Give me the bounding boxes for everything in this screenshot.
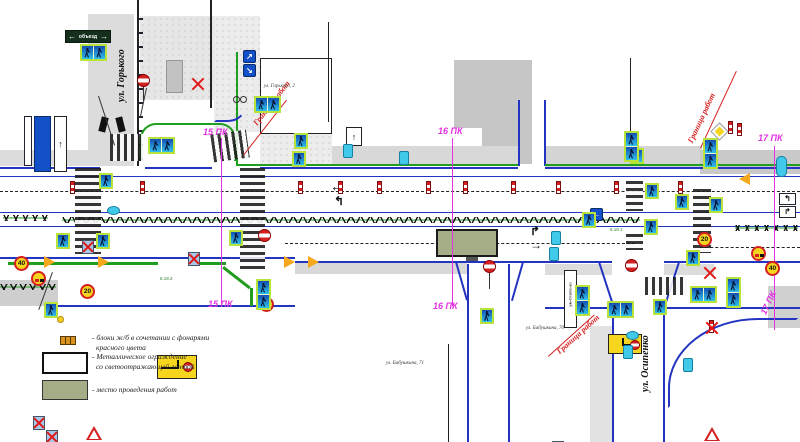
- removed-sign-xmark-c: [706, 321, 718, 335]
- pedestrian-icon: [233, 233, 240, 243]
- road-edge-south-1: [295, 261, 612, 263]
- lane-line-c: [0, 226, 800, 227]
- picket-label-17-top: 17 ПК: [758, 133, 783, 143]
- speed-40-value: 40: [18, 260, 25, 267]
- picket-label-15-bottom: 15 ПК: [208, 299, 233, 309]
- no-entry-sign-a: [137, 74, 150, 87]
- lane-control-board-2: ↱: [779, 206, 796, 218]
- pedestrian-crossing-sign: [44, 302, 58, 318]
- delineator-post: [678, 181, 683, 194]
- pedestrian-icon: [152, 141, 159, 151]
- route-green-top-1: [236, 164, 518, 166]
- delineator-post: [728, 121, 733, 134]
- work-zone-area: [436, 229, 498, 257]
- lane-arrow-right: →: [530, 238, 542, 252]
- removed-sign: [46, 430, 58, 442]
- delineator-post: [140, 181, 145, 194]
- delineator-post: [511, 181, 516, 194]
- pedestrian-icon: [298, 136, 305, 146]
- pedestrian-icon: [586, 215, 593, 225]
- pedestrian-icon: [707, 142, 714, 152]
- keep-direction-sign-se: ↘: [243, 64, 256, 77]
- delineator-post: [614, 181, 619, 194]
- speed-limit-20-sign-c: 20: [697, 232, 712, 247]
- route-green-top-2: [545, 164, 800, 166]
- pedestrian-icon: [730, 281, 737, 291]
- pedestrian-icon: [484, 311, 491, 321]
- speed-20-value-c: 20: [701, 236, 708, 243]
- median-fence: [62, 217, 640, 223]
- curb-south-street-w: [467, 264, 469, 442]
- road-edge-top-2: [145, 167, 212, 169]
- pedestrian-icon: [48, 305, 55, 315]
- work-zone-foot: [466, 257, 478, 261]
- speed-limit-20-sign-a: 20: [80, 284, 95, 299]
- pedestrian-crossing-sign: [229, 230, 243, 246]
- street-direction-text: ул. Осипенко: [568, 282, 573, 306]
- no-entry-stem-c: [489, 273, 490, 289]
- pedestrian-crossing-sign: [644, 219, 658, 235]
- legend-text-1-line1: - блоки ж/б в сочетании с фонарями: [92, 333, 209, 342]
- pedestrian-sign-pair-vertical: [256, 279, 271, 310]
- guide-sign-up-arrow-icon: ↑: [58, 139, 63, 149]
- delineator-post: [338, 181, 343, 194]
- curb-gorkogo-east: [210, 0, 212, 108]
- road-edge-top-3: [260, 167, 518, 169]
- pedestrian-crossing-sign: [94, 46, 105, 59]
- service-sign: [343, 144, 353, 158]
- speed-20-value-a: 20: [84, 288, 91, 295]
- building-small: [166, 60, 183, 93]
- route-green-c: [250, 288, 253, 306]
- pedestrian-icon: [628, 149, 635, 159]
- curb-north-street-w: [518, 100, 520, 166]
- pedestrian-icon: [628, 135, 635, 145]
- no-overtaking-sign-left: [31, 271, 46, 286]
- pedestrian-icon: [260, 297, 267, 307]
- pedestrian-icon: [694, 290, 701, 300]
- picket-line-17: [774, 146, 775, 330]
- legend-text-2-line2: со светоотражающей лентой: [96, 362, 195, 371]
- service-sign: [551, 231, 561, 245]
- bike-wheel-icon-a: [233, 96, 240, 103]
- delineator-post: [377, 181, 382, 194]
- sign-code-6-19-1: 6.19.1: [610, 227, 623, 232]
- pedestrian-crossing-sign: [82, 46, 93, 59]
- picket-line-16: [452, 138, 453, 306]
- pedestrian-crossing-sign: [705, 154, 716, 167]
- guide-sign-white-arrow: ↑: [54, 116, 67, 172]
- work-boundary-label-3: Граница работ: [686, 92, 717, 145]
- service-sign: [683, 358, 693, 372]
- bike-wheel-icon-b: [240, 96, 247, 103]
- crosswalk-right-w2: [626, 234, 643, 250]
- removed-sign-xmark-a: [192, 77, 204, 91]
- pedestrian-sign-pair: [254, 96, 281, 113]
- no-entry-sign-c: [483, 260, 496, 273]
- curb-osipenko-w: [612, 308, 614, 442]
- lane-board-arrow-2-icon: ↱: [784, 207, 791, 216]
- curb-south-street-e: [508, 264, 510, 442]
- pedestrian-crossing-sign: [621, 303, 632, 316]
- speed-40-value-b: 40: [769, 265, 776, 272]
- legend-icon-concrete-blocks: [60, 336, 76, 345]
- turn-direction-arrow-icon: [44, 256, 55, 268]
- pedestrian-crossing-sign: [626, 133, 637, 146]
- pedestrian-icon: [611, 305, 618, 315]
- building-label-babushkina-70: ул. Бабушкина, 70: [526, 326, 564, 331]
- service-ellipse-a: [107, 206, 120, 215]
- pedestrian-icon: [706, 290, 713, 300]
- pedestrian-icon: [100, 236, 107, 246]
- pedestrian-crossing-sign: [692, 288, 703, 301]
- pedestrian-crossing-sign: [686, 250, 700, 266]
- red-lamp-icon: [57, 316, 64, 323]
- pedestrian-crossing-sign: [150, 139, 161, 152]
- pedestrian-icon: [649, 186, 656, 196]
- no-overtaking-sign-right: [751, 246, 766, 261]
- pedestrian-sign-pair-vertical: [703, 138, 718, 169]
- no-entry-sign-d: [625, 259, 638, 272]
- removed-sign: [33, 416, 45, 430]
- fence-right: [735, 225, 798, 231]
- turn-direction-arrow-icon: [284, 256, 295, 268]
- pedestrian-crossing-sign: [728, 279, 739, 292]
- crosswalk-north-a: [110, 134, 144, 161]
- road-edge-south-2: [664, 261, 800, 263]
- pedestrian-icon: [679, 197, 686, 207]
- delineator-post: [298, 181, 303, 194]
- detour-board-arrow-left-icon: ←: [68, 33, 76, 41]
- picket-label-16-bottom: 16 ПК: [433, 301, 458, 311]
- detour-board-text: объезд: [79, 34, 97, 40]
- pedestrian-crossing-sign: [480, 308, 494, 324]
- pedestrian-crossing-sign: [162, 139, 173, 152]
- lane-dashed-2: [700, 247, 800, 248]
- sidewalk-north-1: [332, 146, 518, 166]
- service-sign: [623, 345, 633, 359]
- pedestrian-crossing-sign: [577, 287, 588, 300]
- pedestrian-crossing-sign: [728, 293, 739, 306]
- street-label-gorkogo: ул. Горького: [116, 49, 127, 102]
- picket-label-15-top: 15 ПК: [203, 127, 228, 137]
- pedestrian-crossing-sign: [577, 301, 588, 314]
- removed-sign: [82, 240, 94, 254]
- crosswalk-osipenko: [645, 277, 687, 295]
- service-sign: [399, 151, 409, 165]
- pedestrian-sign-pair: [607, 301, 634, 318]
- legend-text-2-line1: - Металлическое ограждение: [92, 352, 187, 361]
- building-wall-line: [448, 344, 449, 442]
- speed-limit-40-sign-right: 40: [765, 261, 780, 276]
- pedestrian-crossing-sign: [705, 140, 716, 153]
- legend-icon-work-zone: [42, 380, 88, 400]
- turn-direction-arrow-icon: [98, 256, 109, 268]
- pedestrian-icon: [270, 100, 277, 110]
- pedestrian-icon: [579, 289, 586, 299]
- pedestrian-icon: [623, 305, 630, 315]
- pedestrian-sign-pair-vertical: [575, 285, 590, 316]
- fence-left-a: [3, 215, 48, 221]
- lane-arrow-left-turn: ↰: [334, 194, 344, 208]
- removed-sign: [188, 252, 200, 266]
- turn-direction-arrow-icon: [739, 173, 750, 185]
- pedestrian-sign-pair: [148, 137, 175, 154]
- building-label-babushkina-71: ул. Бабушкина, 71: [386, 361, 424, 366]
- traffic-scheme-canvas: 15 ПК 15 ПК 16 ПК 16 ПК 17 ПК 17 ПК Гран…: [0, 0, 800, 442]
- delineator-post: [426, 181, 431, 194]
- guide-sign-blue: [34, 116, 51, 172]
- guide-sign-white-narrow: [24, 116, 32, 166]
- pedestrian-icon: [657, 302, 664, 312]
- pedestrian-crossing-sign: [609, 303, 620, 316]
- road-edge-top-4: [545, 167, 800, 169]
- pedestrian-icon: [648, 222, 655, 232]
- warning-triangle-sign: [86, 426, 102, 440]
- pedestrian-crossing-sign: [653, 299, 667, 315]
- pedestrian-icon: [296, 154, 303, 164]
- detour-board-arrow-right-icon: →: [100, 33, 108, 41]
- crosswalk-right-w1: [626, 181, 643, 211]
- pedestrian-icon: [164, 141, 171, 151]
- pedestrian-crossing-sign: [626, 147, 637, 160]
- building-label-gorkogo-2: ул. Горького, 2: [264, 84, 295, 89]
- ne-arrow-icon: ↗: [246, 52, 253, 61]
- pedestrian-sign-pair-vertical: [726, 277, 741, 308]
- se-arrow-icon: ↘: [246, 66, 253, 75]
- curb-north-street-e: [544, 100, 546, 166]
- pedestrian-icon: [730, 295, 737, 305]
- keep-direction-sign-ne: ↗: [243, 50, 256, 63]
- pedestrian-sign-pair: [690, 286, 717, 303]
- service-ellipse-b: [626, 331, 639, 340]
- crosswalk-main-east: [240, 168, 265, 271]
- pedestrian-crossing-sign: [258, 281, 269, 294]
- pedestrian-icon: [260, 283, 267, 293]
- pedestrian-icon: [103, 176, 110, 186]
- warning-triangle-removed: [704, 427, 720, 441]
- pedestrian-crossing-sign: [675, 194, 689, 210]
- pedestrian-icon: [707, 156, 714, 166]
- service-sign-capsule: [776, 156, 787, 177]
- boundary-line-a: [328, 22, 329, 122]
- delineator-post: [70, 181, 75, 194]
- pedestrian-crossing-sign: [99, 173, 113, 189]
- pedestrian-crossing-sign: [292, 151, 306, 167]
- removed-sign-xmark-b: [704, 266, 716, 280]
- sidewalk-south-center: [295, 262, 467, 274]
- delineator-post: [556, 181, 561, 194]
- pedestrian-icon: [96, 48, 103, 58]
- pedestrian-icon: [60, 236, 67, 246]
- detour-board-sign: ← объезд →: [65, 30, 111, 43]
- service-sign: [549, 247, 559, 261]
- pedestrian-sign-pair-vertical: [624, 131, 639, 162]
- curb-osipenko-e: [663, 308, 665, 442]
- delineator-post: [737, 123, 742, 136]
- lane-control-board-1: ↰: [779, 193, 796, 205]
- pedestrian-crossing-sign: [645, 183, 659, 199]
- lane-line-b: [0, 212, 800, 213]
- legend-text-3-line1: - место проведения работ: [92, 385, 177, 394]
- sign-code-6-19-2: 6.19.2: [160, 276, 173, 281]
- pedestrian-crossing-sign: [268, 98, 279, 111]
- pedestrian-crossing-sign: [709, 197, 723, 213]
- pedestrian-icon: [84, 48, 91, 58]
- pedestrian-icon: [258, 100, 265, 110]
- picket-label-16-top: 16 ПК: [438, 126, 463, 136]
- route-up-arrow-icon: ↑: [352, 132, 357, 142]
- pedestrian-sign-pair: [80, 44, 107, 61]
- pedestrian-icon: [690, 253, 697, 263]
- legend-text-1-line2: красного цвета: [96, 343, 146, 352]
- pedestrian-crossing-sign: [704, 288, 715, 301]
- pedestrian-crossing-sign: [96, 233, 110, 249]
- lane-arrow-right-turn: ↱: [530, 224, 540, 238]
- picket-line-15: [221, 138, 222, 304]
- turn-direction-arrow-icon: [308, 256, 319, 268]
- pedestrian-crossing-sign: [582, 212, 596, 228]
- pedestrian-crossing-sign: [294, 133, 308, 149]
- delineator-post: [463, 181, 468, 194]
- lane-board-arrow-1-icon: ↰: [784, 194, 791, 203]
- no-entry-sign-b: [258, 229, 271, 242]
- pedestrian-crossing-sign: [258, 295, 269, 308]
- pedestrian-crossing-sign: [56, 233, 70, 249]
- speed-limit-40-sign-left: 40: [14, 256, 29, 271]
- route-green-a: [8, 262, 158, 265]
- lane-line-a: [0, 176, 800, 177]
- pedestrian-icon: [713, 200, 720, 210]
- pedestrian-crossing-sign: [256, 98, 267, 111]
- pedestrian-icon: [579, 303, 586, 313]
- legend-icon-metal-fence: [42, 352, 88, 374]
